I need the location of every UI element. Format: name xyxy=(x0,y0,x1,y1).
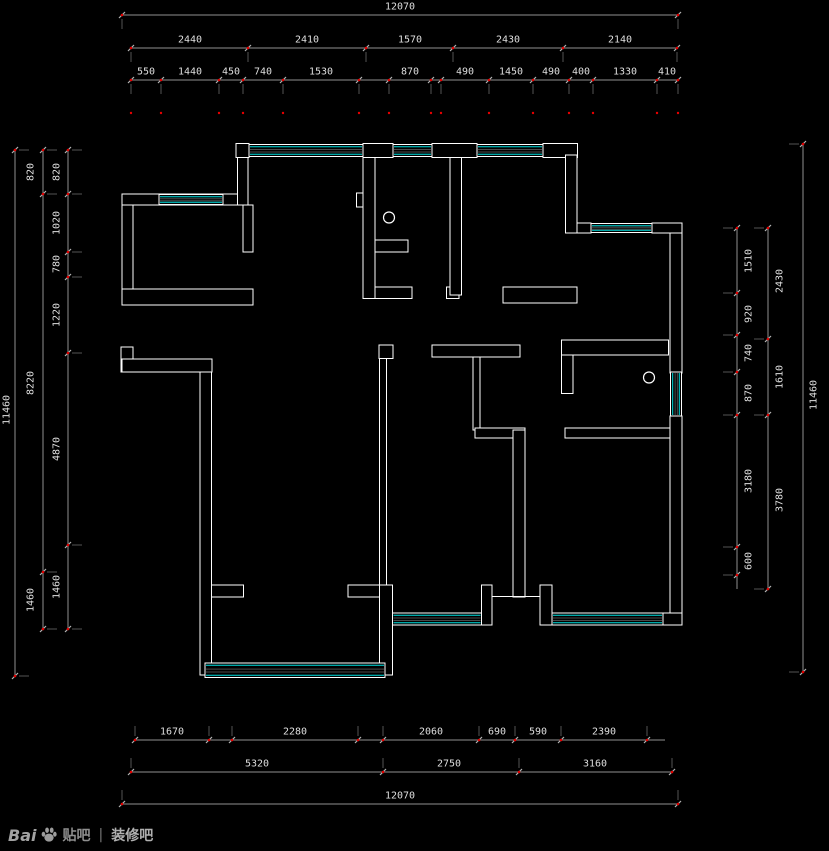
dim-label: 2430 xyxy=(775,269,786,293)
floor-drain-circle xyxy=(384,212,395,223)
wall-segment xyxy=(482,585,493,625)
dim-chain-top_rooms xyxy=(128,45,680,62)
window xyxy=(393,145,432,157)
dim-label: 2750 xyxy=(437,759,461,770)
window xyxy=(159,195,223,205)
dim-label: 590 xyxy=(529,727,547,738)
window xyxy=(591,224,652,233)
floor-drain-circle xyxy=(644,372,655,383)
wall-segment xyxy=(432,144,477,158)
window xyxy=(249,145,363,157)
window xyxy=(393,613,482,625)
dim-label: 12070 xyxy=(385,2,415,13)
dimension-chains xyxy=(12,12,806,807)
dim-label: 820 xyxy=(52,163,63,181)
dim-chain-top_overall xyxy=(119,12,681,29)
dim-label: 1570 xyxy=(398,35,422,46)
window xyxy=(205,663,385,678)
wall-segment xyxy=(562,355,574,394)
wall-segment xyxy=(212,585,244,597)
wall-segment xyxy=(577,223,591,233)
wall-segment xyxy=(380,585,393,675)
wall-segment xyxy=(357,193,364,207)
dim-label: 4870 xyxy=(52,437,63,461)
dim-label: 600 xyxy=(744,552,755,570)
dim-chain-bottom_detail xyxy=(132,726,665,743)
dim-label: 2430 xyxy=(496,35,520,46)
dim-label: 1440 xyxy=(178,67,202,78)
dim-label: 1530 xyxy=(309,67,333,78)
forum-name: 装修吧 xyxy=(111,825,153,845)
dim-label: 2280 xyxy=(283,727,307,738)
dim-label: 450 xyxy=(222,67,240,78)
dim-label: 11460 xyxy=(809,380,820,410)
wall-segment xyxy=(379,345,393,359)
dim-label: 920 xyxy=(744,305,755,323)
dim-label: 2060 xyxy=(419,727,443,738)
wall-segment xyxy=(450,158,462,296)
dim-label: 1020 xyxy=(52,211,63,235)
dim-label: 870 xyxy=(401,67,419,78)
dim-label: 5320 xyxy=(245,759,269,770)
wall-segment xyxy=(565,428,670,438)
dim-label: 8220 xyxy=(26,371,37,395)
wall-segment xyxy=(562,340,669,355)
watermark: Bai 贴吧 | 装修吧 xyxy=(8,822,153,848)
dim-label: 490 xyxy=(542,67,560,78)
wall-segment xyxy=(238,158,249,206)
wall-segment xyxy=(670,416,682,625)
cad-canvas: 1207024402410157024302140550144045074015… xyxy=(0,0,829,851)
dim-label: 2410 xyxy=(295,35,319,46)
wall-segment xyxy=(663,613,682,625)
wall-segment xyxy=(503,287,577,303)
dim-label: 1450 xyxy=(499,67,523,78)
dim-label: 2140 xyxy=(608,35,632,46)
dim-label: 12070 xyxy=(385,791,415,802)
wall-segment xyxy=(380,359,387,586)
tieba-logo-text: 贴吧 xyxy=(62,825,90,845)
dim-label: 2390 xyxy=(592,727,616,738)
baidu-paw-icon xyxy=(40,826,58,844)
dim-label: 3780 xyxy=(775,488,786,512)
dim-chain-right_detail xyxy=(723,225,740,589)
window xyxy=(671,372,682,416)
wall-segment xyxy=(122,359,212,372)
wall-segment xyxy=(513,430,525,597)
dim-label: 1460 xyxy=(52,575,63,599)
dim-label: 780 xyxy=(52,255,63,273)
wall-segment xyxy=(348,585,380,597)
dim-label: 550 xyxy=(137,67,155,78)
wall-segment xyxy=(652,223,682,233)
dim-chain-right_overall xyxy=(789,141,806,675)
window xyxy=(552,613,663,625)
wall-segment xyxy=(243,205,253,252)
dim-label: 870 xyxy=(744,384,755,402)
dim-label: 410 xyxy=(658,67,676,78)
floor-plan-drawing xyxy=(0,0,829,851)
wall-segment xyxy=(540,585,552,625)
dim-label: 1330 xyxy=(613,67,637,78)
dim-chain-left_detail xyxy=(65,147,82,632)
dim-label: 1670 xyxy=(160,727,184,738)
watermark-divider: | xyxy=(98,827,103,843)
wall-segment xyxy=(473,357,480,430)
wall-segment xyxy=(122,289,253,305)
wall-segment xyxy=(363,144,393,158)
dim-label: 490 xyxy=(456,67,474,78)
dim-label: 820 xyxy=(26,163,37,181)
dim-label: 740 xyxy=(254,67,272,78)
wall-segment xyxy=(200,372,212,675)
wall-segment xyxy=(566,155,578,233)
wall-segment xyxy=(670,233,682,373)
dim-label: 2440 xyxy=(178,35,202,46)
dim-chain-top_detail xyxy=(128,77,681,114)
wall-segment xyxy=(432,345,520,357)
dim-label: 3180 xyxy=(744,469,755,493)
window xyxy=(477,145,543,157)
wall-segment xyxy=(363,158,375,299)
dim-label: 1510 xyxy=(744,249,755,273)
dim-label: 1460 xyxy=(26,588,37,612)
wall-segment xyxy=(375,287,412,299)
dim-label: 740 xyxy=(744,344,755,362)
dim-label: 11460 xyxy=(2,395,13,425)
wall-segment xyxy=(375,240,408,252)
dim-label: 690 xyxy=(488,727,506,738)
dim-label: 400 xyxy=(572,67,590,78)
dim-label: 3160 xyxy=(583,759,607,770)
baidu-logo-text: Bai xyxy=(8,826,36,845)
dim-chain-right_mid xyxy=(754,225,771,592)
dim-label: 1220 xyxy=(52,303,63,327)
windows xyxy=(159,145,682,678)
wall-segment xyxy=(236,144,249,158)
dim-label: 1610 xyxy=(775,365,786,389)
